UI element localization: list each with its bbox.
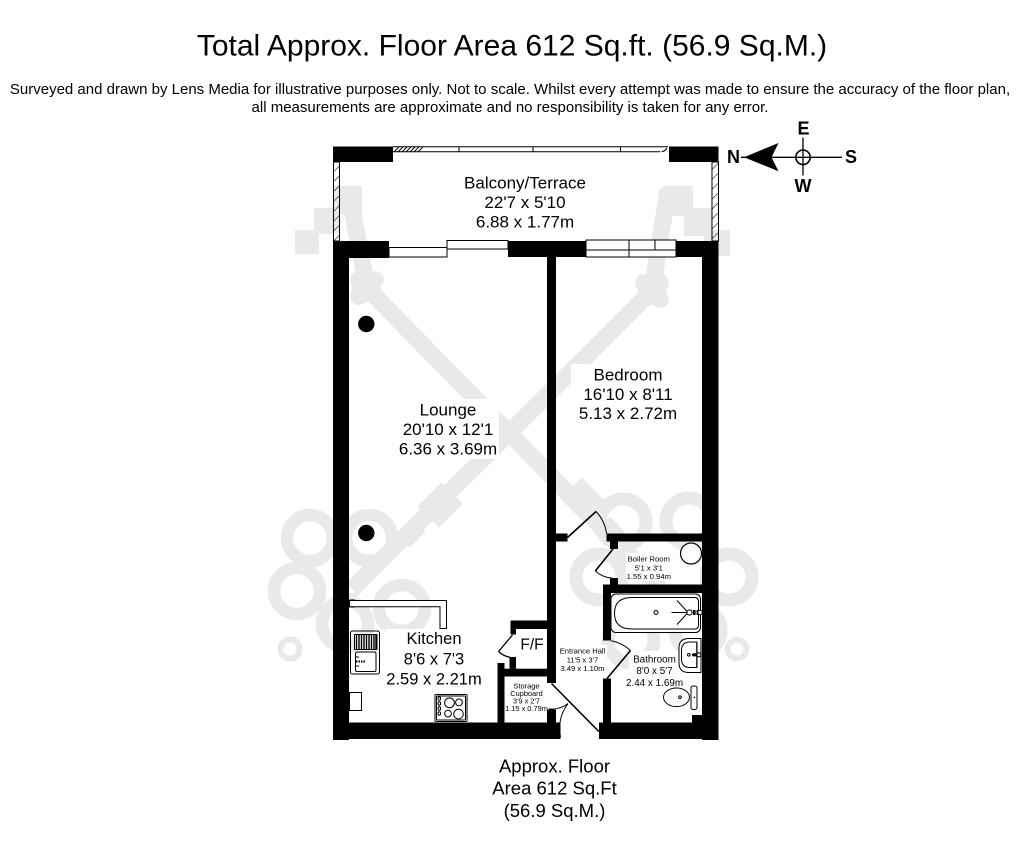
svg-text:all measurements are approxima: all measurements are approximate and no … <box>252 99 769 116</box>
svg-text:Surveyed and drawn by Lens Med: Surveyed and drawn by Lens Media for ill… <box>10 81 1010 98</box>
svg-text:Bathroom: Bathroom <box>633 654 676 665</box>
svg-text:3.49 x 1.10m: 3.49 x 1.10m <box>561 664 605 673</box>
svg-text:F/F: F/F <box>520 636 543 653</box>
svg-text:S: S <box>845 147 857 167</box>
svg-text:Boiler Room: Boiler Room <box>628 555 670 564</box>
svg-text:Kitchen: Kitchen <box>406 630 461 648</box>
svg-text:Total Approx. Floor Area 612 S: Total Approx. Floor Area 612 Sq.ft. (56.… <box>197 29 827 62</box>
svg-text:1.55 x 0.94m: 1.55 x 0.94m <box>627 572 671 581</box>
svg-text:Bedroom: Bedroom <box>594 365 663 384</box>
svg-text:Balcony/Terrace: Balcony/Terrace <box>464 174 586 193</box>
svg-text:1.15 x 0.79m: 1.15 x 0.79m <box>505 704 548 713</box>
svg-text:6.36 x 3.69m: 6.36 x 3.69m <box>399 440 497 459</box>
svg-text:2.44 x 1.69m: 2.44 x 1.69m <box>626 678 683 689</box>
svg-text:N: N <box>727 147 740 167</box>
svg-text:5.13 x 2.72m: 5.13 x 2.72m <box>579 404 677 423</box>
svg-text:Lounge: Lounge <box>420 401 477 420</box>
svg-text:16'10 x 8'11: 16'10 x 8'11 <box>583 385 672 404</box>
svg-text:11'5 x 3'7: 11'5 x 3'7 <box>567 655 598 664</box>
svg-text:22'7 x 5'10: 22'7 x 5'10 <box>484 193 565 212</box>
svg-text:E: E <box>797 119 809 139</box>
svg-text:2.59 x 2.21m: 2.59 x 2.21m <box>386 670 481 688</box>
svg-text:8'6 x 7'3: 8'6 x 7'3 <box>404 650 464 668</box>
svg-text:6.88 x 1.77m: 6.88 x 1.77m <box>476 213 574 232</box>
svg-text:Entrance Hall: Entrance Hall <box>560 647 606 656</box>
svg-text:(56.9 Sq.M.): (56.9 Sq.M.) <box>504 800 606 821</box>
svg-text:5'1 x 3'1: 5'1 x 3'1 <box>635 563 663 572</box>
svg-text:W: W <box>795 176 812 196</box>
svg-text:Area 612 Sq.Ft: Area 612 Sq.Ft <box>492 778 616 799</box>
svg-text:8'0 x 5'7: 8'0 x 5'7 <box>636 666 672 677</box>
svg-text:20'10 x 12'1: 20'10 x 12'1 <box>403 420 494 439</box>
svg-text:Approx. Floor: Approx. Floor <box>499 756 610 777</box>
